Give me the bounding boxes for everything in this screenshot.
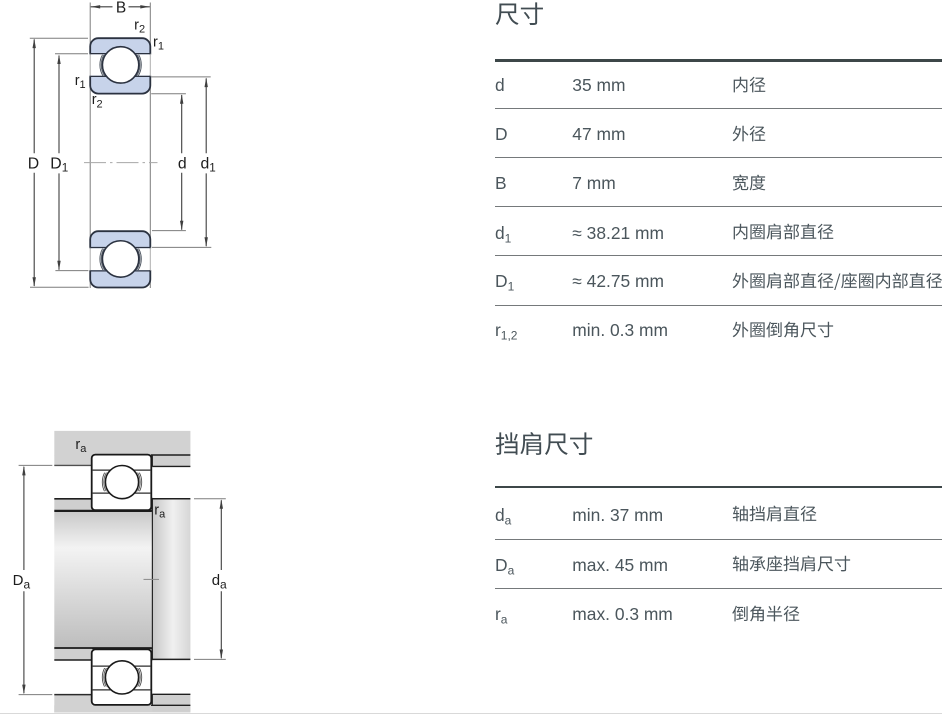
svg-text:d1: d1 [201, 155, 216, 174]
svg-text:da: da [212, 572, 227, 592]
svg-text:D1: D1 [50, 155, 68, 174]
svg-text:D: D [28, 155, 39, 172]
svg-text:r2: r2 [134, 17, 145, 35]
svg-text:Da: Da [13, 572, 31, 592]
svg-text:d: d [178, 155, 187, 172]
svg-text:r2: r2 [92, 92, 103, 110]
svg-text:r1: r1 [75, 73, 86, 91]
svg-text:B: B [116, 0, 126, 16]
svg-text:r1: r1 [153, 35, 164, 53]
